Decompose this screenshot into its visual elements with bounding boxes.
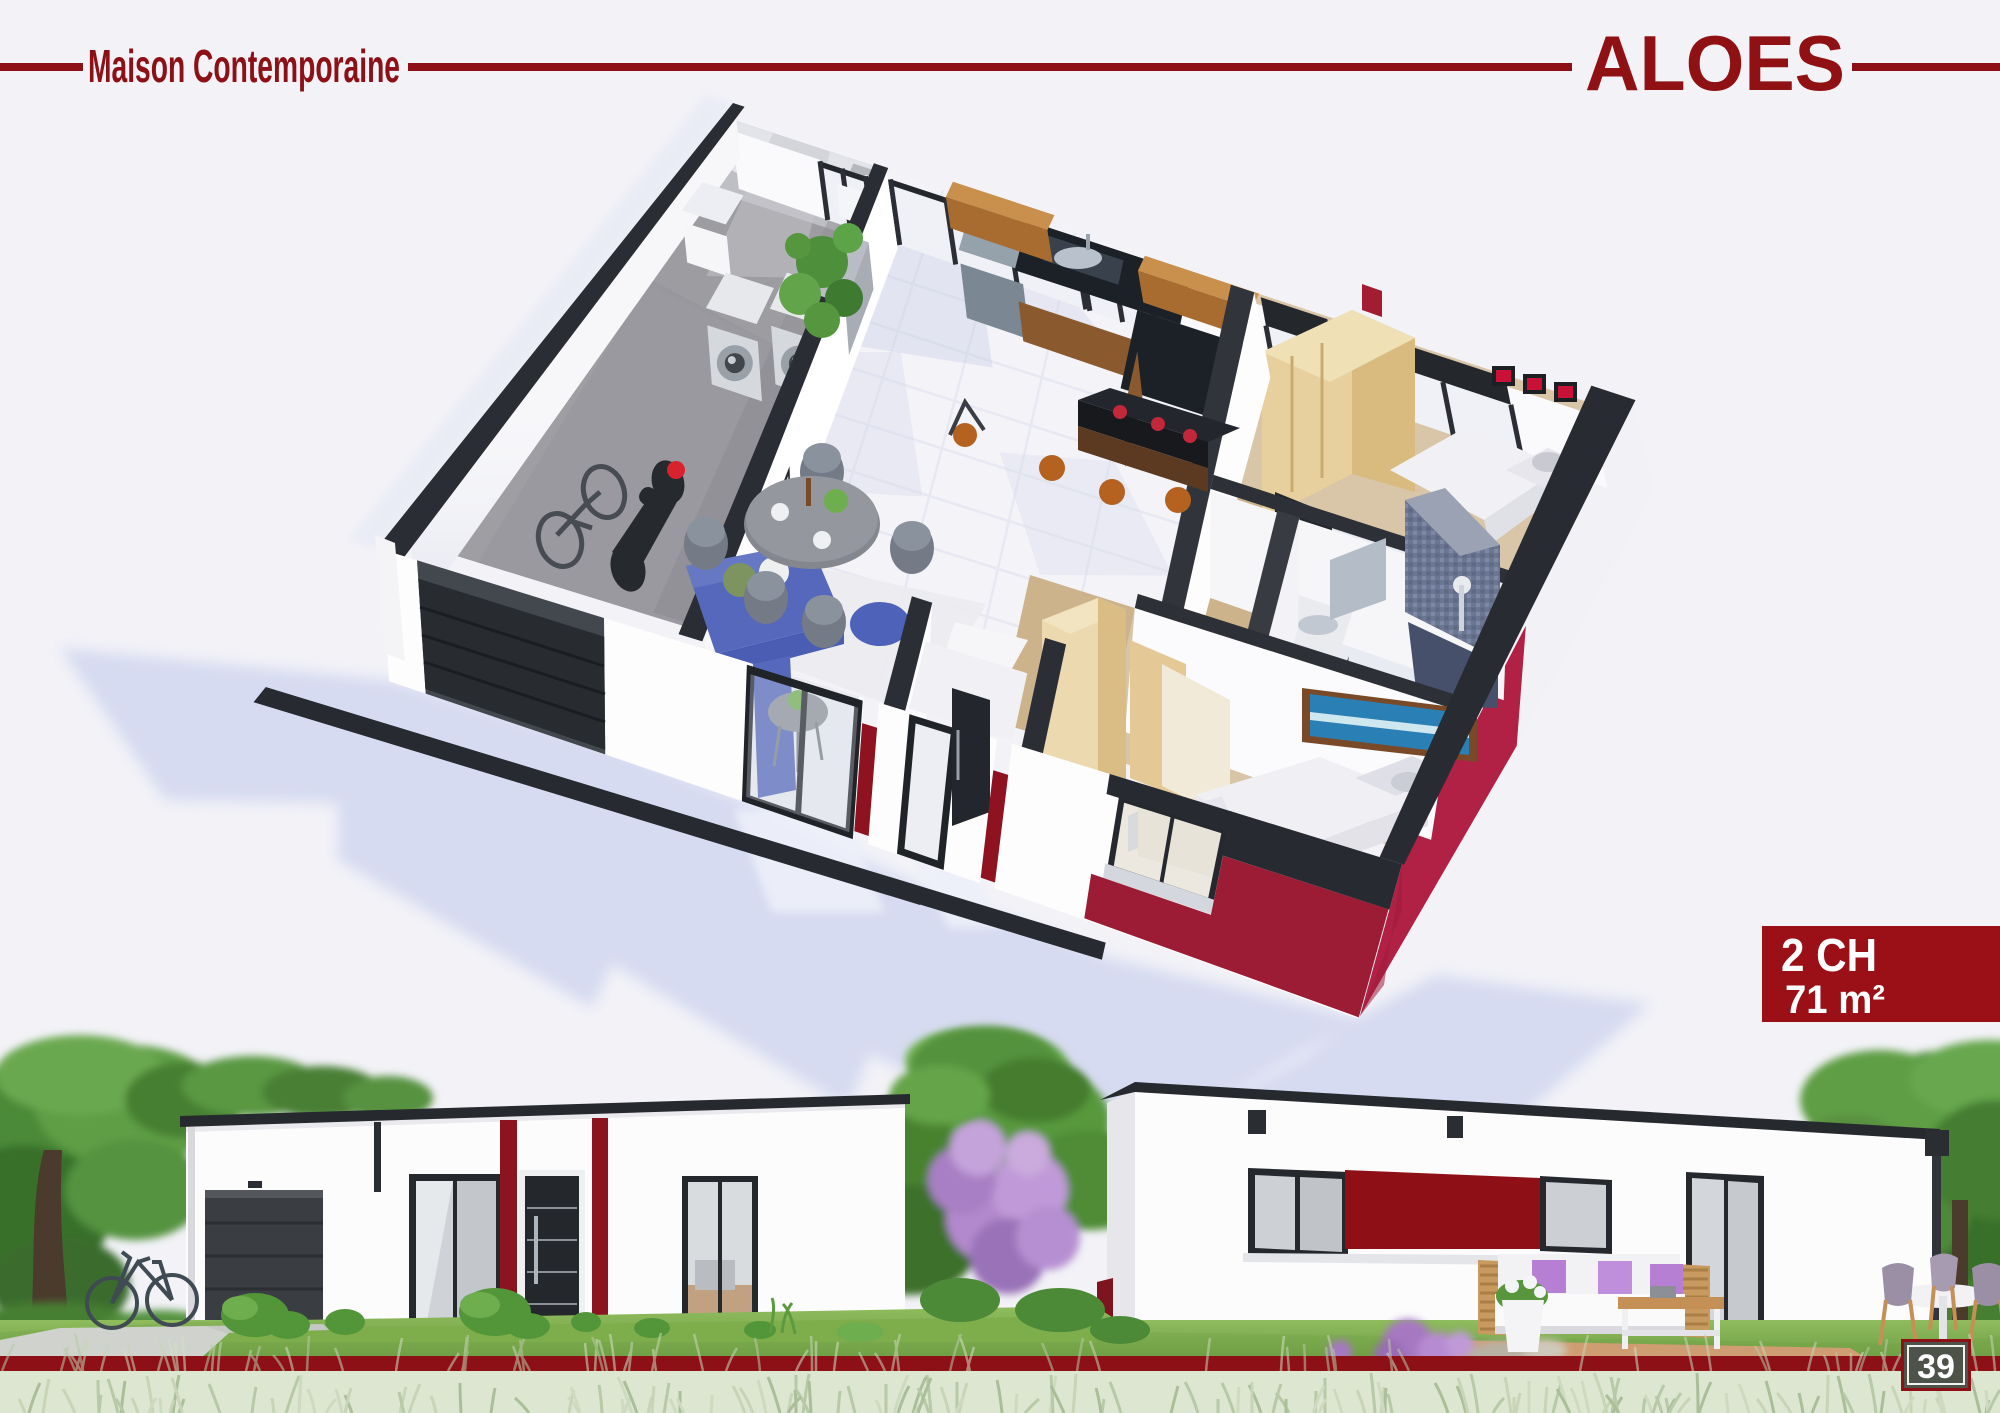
svg-text:39: 39 [1917,1348,1955,1386]
svg-text:2 CH: 2 CH [1781,929,1877,981]
svg-text:71 m²: 71 m² [1785,978,1885,1022]
svg-text:Maison Contemporaine: Maison Contemporaine [88,40,400,92]
svg-text:ALOES: ALOES [1585,19,1845,107]
